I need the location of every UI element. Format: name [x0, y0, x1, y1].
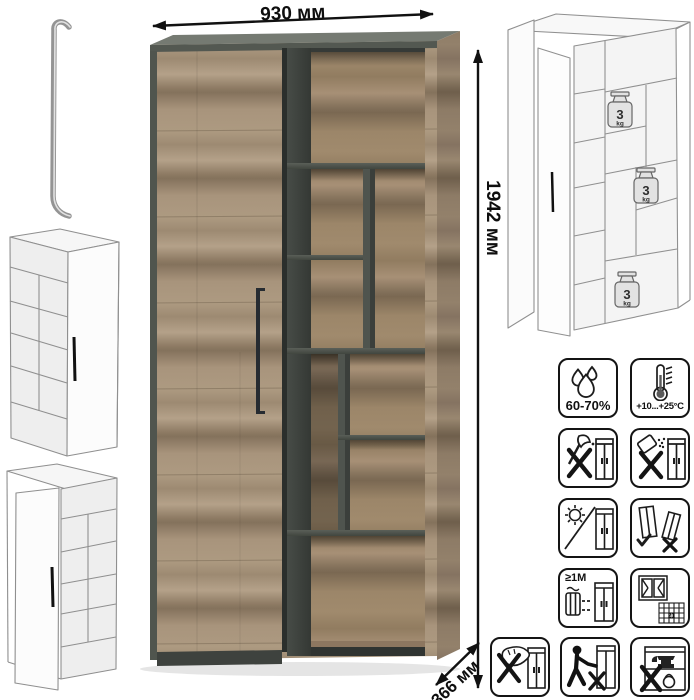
- product-photo: [140, 31, 460, 676]
- cabinet-glyph: [668, 439, 685, 479]
- compartment-back: [350, 354, 425, 435]
- cabinet-glyph: [596, 509, 613, 549]
- temperature-icon: +10...+25°C: [630, 358, 690, 418]
- check-mark: [638, 535, 650, 545]
- door-gap: [282, 48, 287, 652]
- wireframe-handle: [52, 567, 53, 607]
- cabinet-glyph: [595, 583, 613, 621]
- svg-text:kg: kg: [616, 121, 624, 128]
- humidity-range-label: 60-70%: [560, 399, 616, 412]
- plinth: [157, 650, 282, 666]
- x-mark: [641, 453, 661, 477]
- x-mark: [569, 450, 590, 476]
- width-dimension-label: 930 мм: [260, 2, 326, 26]
- acclimatize-days-label: 21: [668, 614, 675, 620]
- shelf: [338, 435, 425, 440]
- depth-dimension-label: 366 мм: [427, 656, 483, 700]
- no-wet-cleaning-icon: [490, 637, 550, 697]
- wf-handle: [552, 172, 553, 212]
- wf-side: [508, 20, 534, 328]
- carry-upright-icon: [630, 498, 690, 558]
- heat-distance-icon: ≥1M: [558, 568, 618, 628]
- no-direct-sunlight-icon: [558, 498, 618, 558]
- compartment-back: [311, 536, 425, 645]
- compartment-back: [375, 169, 425, 348]
- no-axe-impact-icon: [558, 428, 618, 488]
- temperature-range-label: +10...+25°C: [632, 402, 688, 412]
- shelf-shadow: [311, 354, 425, 366]
- shelf: [287, 255, 363, 260]
- cabinet-glyph: [596, 439, 613, 479]
- divider: [338, 354, 345, 530]
- svg-text:kg: kg: [623, 301, 631, 308]
- shelf-shadow: [350, 440, 425, 450]
- handle-drawing: [53, 22, 70, 216]
- upright-cabinet-glyph: [639, 506, 657, 537]
- calendar-grid-icon: 21: [659, 603, 684, 623]
- radiator-icon: [566, 588, 580, 616]
- shelf-shadow: [311, 536, 425, 548]
- shelf: [287, 530, 425, 536]
- open-shelving: [287, 48, 425, 656]
- wf-door: [538, 48, 570, 336]
- shelf: [287, 163, 425, 169]
- svg-text:kg: kg: [642, 197, 650, 204]
- ventilation-icon: 21: [630, 568, 690, 628]
- divider: [363, 169, 370, 348]
- wireframe-load-diagram: 3 kg 3 kg 3 kg: [508, 14, 690, 336]
- wireframe-door-view: [10, 229, 119, 456]
- bottom-floor: [311, 641, 425, 647]
- wireframe-handle: [74, 337, 75, 381]
- distance-arrows: [582, 601, 592, 610]
- divider-side: [370, 169, 375, 348]
- cabinet-glyph: [528, 648, 545, 688]
- humidity-icon: 60-70%: [558, 358, 618, 418]
- left-edge-trim: [150, 51, 157, 660]
- wireframe-open-door-view: [7, 464, 117, 690]
- height-dimension-label: 1942 мм: [482, 180, 503, 256]
- cabinet-side-panel: [437, 31, 460, 660]
- product-sheet: 930 мм 1942 мм 366 мм: [0, 0, 694, 700]
- anvil-icon: [652, 656, 675, 668]
- pouring-box-icon: [637, 434, 665, 453]
- compartment-back: [311, 169, 363, 255]
- shelf: [287, 348, 425, 354]
- tilted-cabinet-glyph: [662, 512, 680, 540]
- cabinet-glyph: [645, 647, 685, 690]
- no-leaning-icon: [560, 637, 620, 697]
- shelf-shadow: [311, 52, 425, 66]
- sun-icon: [565, 505, 585, 525]
- compartment-back: [311, 260, 363, 348]
- open-window-icon: [639, 576, 667, 600]
- x-mark: [664, 539, 676, 551]
- compartment-shade: [311, 354, 338, 530]
- divider-side: [345, 354, 350, 530]
- bottom-recess: [311, 647, 425, 656]
- kettlebell-icon: [664, 675, 675, 688]
- no-spill-icon: [630, 428, 690, 488]
- person-pushing-icon: [569, 646, 596, 685]
- compartment-back: [350, 440, 425, 530]
- no-overload-icon: [630, 637, 690, 697]
- compartment-back: [311, 52, 425, 163]
- min-distance-label: ≥1M: [565, 573, 586, 584]
